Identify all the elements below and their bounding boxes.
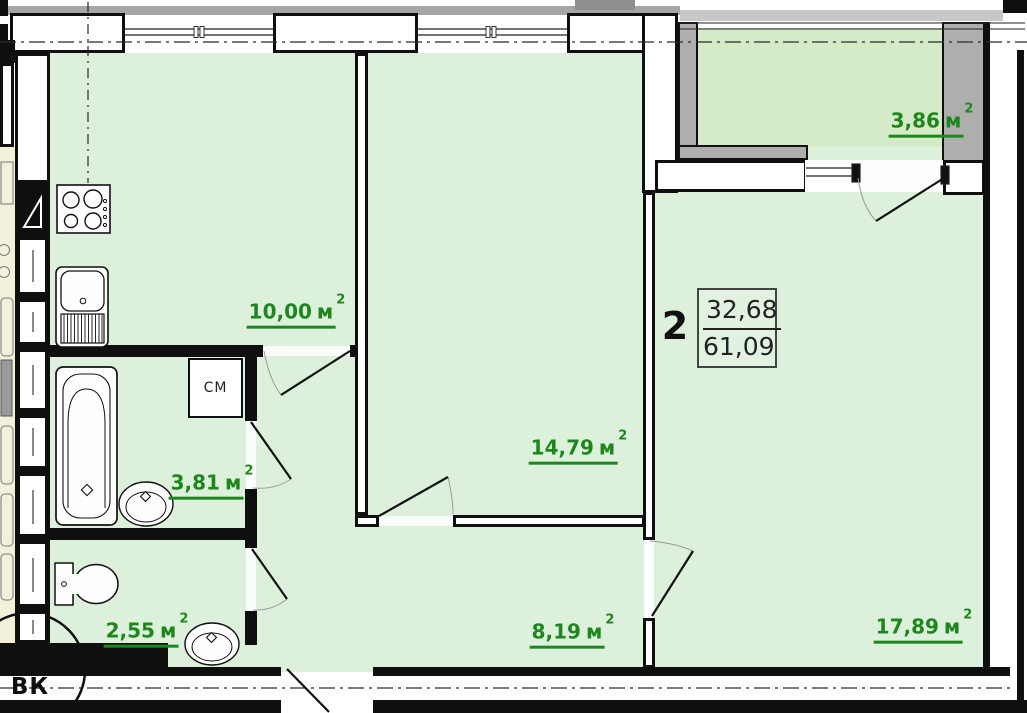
hallway-area-label: 8,19м2	[530, 621, 615, 642]
kitchen-area-label: 10,00м2	[247, 301, 346, 322]
washing-machine-box: СМ	[188, 358, 243, 418]
living-door-arc	[650, 541, 693, 551]
wc-door-leaf	[252, 549, 287, 599]
balcony-area-label: 3,86м2	[889, 110, 974, 131]
bathroom-door-leaf	[251, 422, 291, 479]
living-room-area-label: 17,89м2	[874, 616, 973, 637]
bathroom-area-label: 3,81м2	[169, 472, 254, 493]
apartment-area-card: 32,68 61,09	[697, 288, 777, 368]
neighbor-fixtures	[0, 162, 13, 600]
entrance-door-leaf	[287, 669, 329, 712]
apartment-total-area: 61,09	[703, 330, 771, 364]
vent-shaft-label: ВК	[11, 674, 49, 700]
floor-plan: СМ	[0, 0, 1027, 713]
balcony-door-leaf	[876, 178, 944, 221]
toilet-icon	[55, 563, 118, 605]
stove-icon	[57, 185, 110, 233]
wc-door-arc	[253, 599, 287, 610]
centerlines	[0, 2, 1027, 688]
living-door-leaf	[652, 551, 693, 616]
bedroom-area-label: 14,79м2	[529, 437, 628, 458]
balcony-door-hinge	[941, 166, 949, 184]
apartment-living-area: 32,68	[703, 293, 781, 330]
windows	[125, 23, 1025, 184]
hallway-sink-icon	[185, 623, 239, 665]
balcony-window-handle	[852, 164, 860, 182]
kitchen-door-arc	[264, 351, 281, 395]
kitchen-sink-icon	[56, 267, 108, 347]
bathroom-door-arc	[253, 479, 291, 488]
bedroom-door-leaf	[379, 477, 448, 516]
bedroom-door-arc	[448, 477, 453, 514]
wc-area-label: 2,55м2	[104, 620, 189, 641]
bathroom-sink-icon	[119, 482, 173, 526]
washing-machine-label: СМ	[204, 380, 228, 396]
bathtub-icon	[56, 367, 117, 525]
apartment-room-count: 2	[662, 304, 688, 348]
balcony-door-arc	[858, 178, 876, 221]
garbage-chute-icon	[24, 198, 41, 227]
kitchen-door-leaf	[281, 351, 350, 395]
